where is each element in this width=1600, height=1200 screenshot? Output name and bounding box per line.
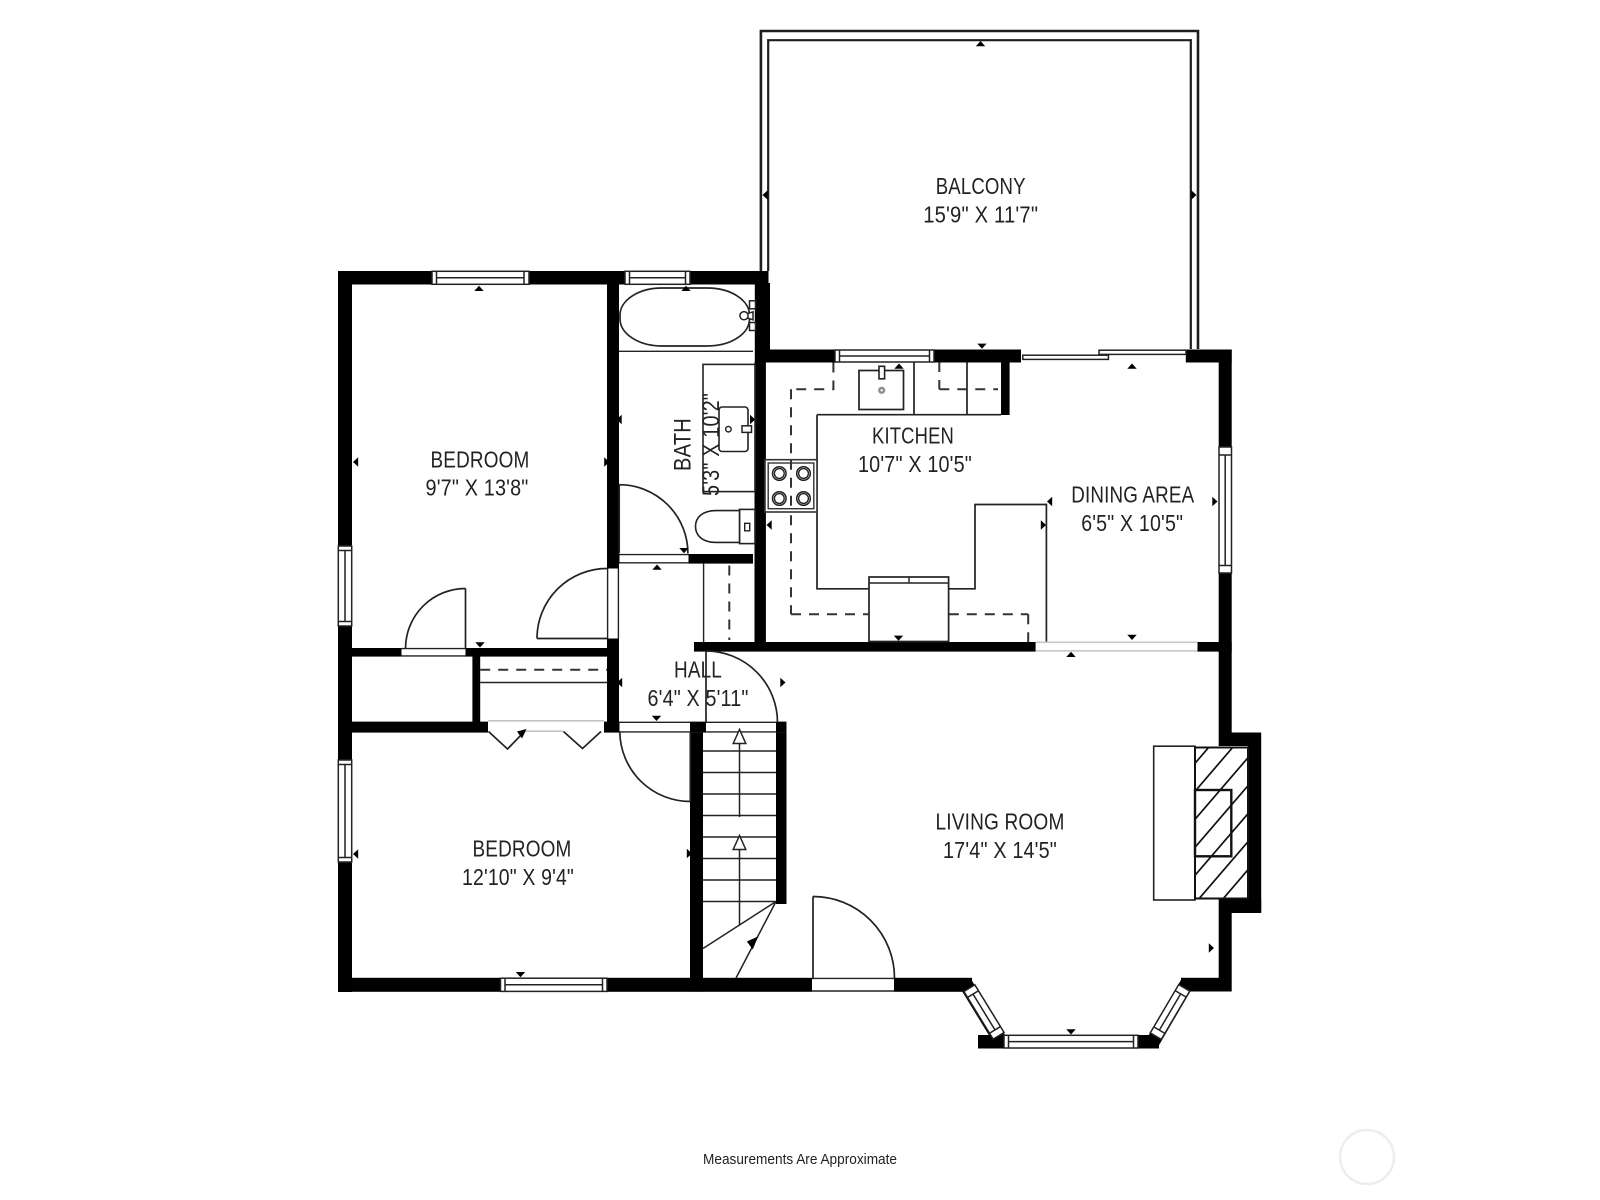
svg-text:BEDROOM: BEDROOM: [473, 836, 572, 862]
svg-text:KITCHEN: KITCHEN: [872, 423, 954, 449]
svg-text:15'9" X 11'7": 15'9" X 11'7": [923, 201, 1038, 227]
svg-text:LIVING ROOM: LIVING ROOM: [936, 809, 1065, 835]
svg-text:10'7" X 10'5": 10'7" X 10'5": [858, 451, 972, 477]
svg-text:BATH: BATH: [670, 418, 697, 471]
svg-text:DINING AREA: DINING AREA: [1071, 482, 1194, 508]
svg-text:BEDROOM: BEDROOM: [431, 446, 530, 472]
svg-text:9'7" X 13'8": 9'7" X 13'8": [426, 475, 529, 501]
svg-text:BALCONY: BALCONY: [936, 173, 1026, 199]
svg-text:Measurements Are Approximate: Measurements Are Approximate: [703, 1151, 897, 1168]
svg-text:HALL: HALL: [674, 657, 722, 683]
svg-text:17'4" X 14'5": 17'4" X 14'5": [943, 837, 1057, 863]
svg-text:5'3" X 10'2": 5'3" X 10'2": [698, 393, 725, 496]
svg-text:6'4" X 5'11": 6'4" X 5'11": [648, 685, 749, 711]
svg-text:6'5" X 10'5": 6'5" X 10'5": [1081, 510, 1183, 536]
svg-text:12'10" X 9'4": 12'10" X 9'4": [462, 864, 574, 890]
